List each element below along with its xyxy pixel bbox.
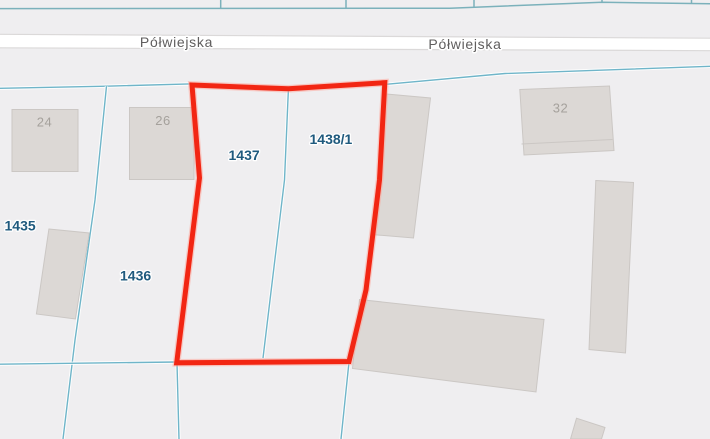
- svg-text:1438/1: 1438/1: [310, 131, 353, 147]
- svg-text:1436: 1436: [120, 268, 151, 284]
- svg-text:Półwiejska: Półwiejska: [140, 34, 213, 50]
- svg-text:1435: 1435: [5, 218, 36, 234]
- svg-text:24: 24: [37, 115, 52, 130]
- svg-text:32: 32: [553, 101, 568, 116]
- svg-text:1437: 1437: [229, 147, 260, 163]
- svg-text:26: 26: [155, 113, 170, 128]
- svg-text:Półwiejska: Półwiejska: [428, 36, 501, 52]
